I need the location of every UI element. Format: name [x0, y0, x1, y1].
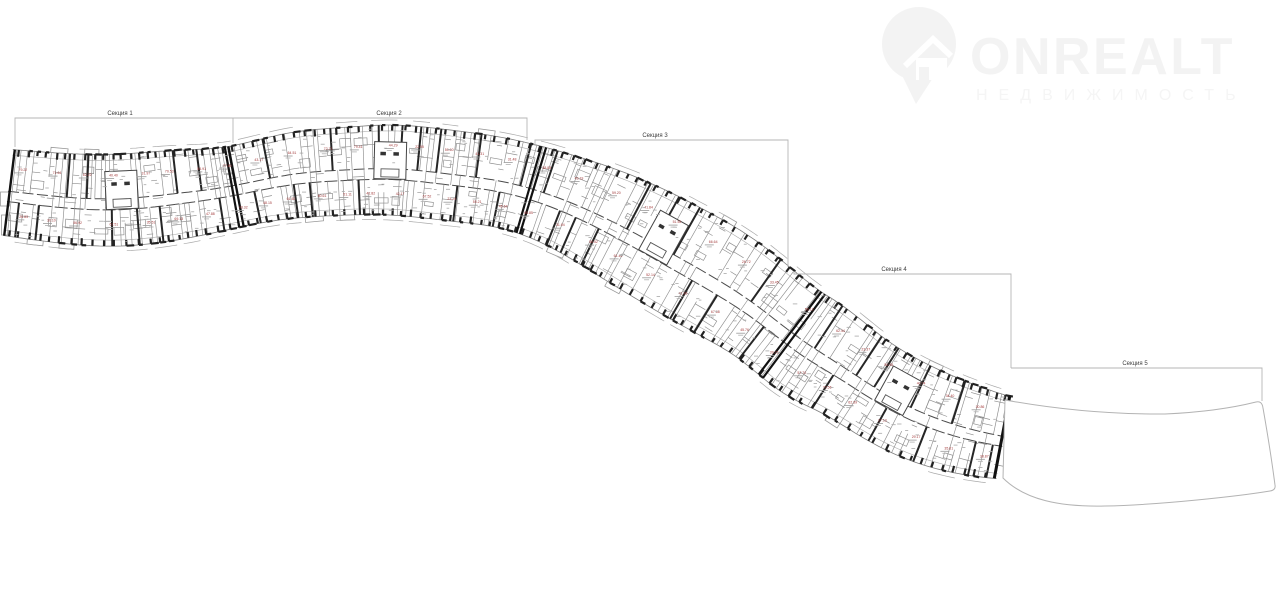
svg-text:44.29: 44.29 [389, 144, 398, 148]
svg-text:56.12: 56.12 [805, 308, 814, 312]
svg-text:38.87: 38.87 [980, 454, 989, 458]
svg-text:62.44: 62.44 [836, 329, 845, 333]
svg-text:23.37: 23.37 [861, 347, 870, 351]
svg-text:Секция 4: Секция 4 [881, 267, 907, 273]
svg-text:43.32: 43.32 [239, 206, 248, 210]
svg-text:27.13: 27.13 [878, 419, 887, 423]
svg-text:52.14: 52.14 [646, 273, 655, 277]
svg-text:43.17: 43.17 [254, 158, 263, 162]
svg-text:41.93: 41.93 [679, 292, 688, 296]
svg-text:31.97: 31.97 [142, 172, 151, 176]
svg-text:45.76: 45.76 [740, 328, 749, 332]
svg-text:57.70: 57.70 [797, 371, 806, 375]
svg-text:33.45: 33.45 [770, 280, 779, 284]
svg-text:26.83: 26.83 [19, 215, 28, 219]
svg-text:65.85: 65.85 [524, 211, 533, 215]
svg-text:67.52: 67.52 [423, 194, 432, 198]
svg-text:72.71: 72.71 [324, 147, 333, 151]
svg-text:77.80: 77.80 [223, 164, 232, 168]
svg-text:35.51: 35.51 [147, 220, 156, 224]
svg-text:70.53: 70.53 [165, 170, 174, 174]
svg-text:64.51: 64.51 [288, 151, 297, 155]
svg-text:41.31: 41.31 [475, 152, 484, 156]
svg-text:Секция 3: Секция 3 [642, 133, 668, 139]
svg-text:31.48: 31.48 [508, 157, 517, 161]
svg-text:62.39: 62.39 [848, 401, 857, 405]
svg-text:50.60: 50.60 [445, 148, 454, 152]
svg-text:62.22: 62.22 [83, 173, 92, 177]
svg-text:71.64: 71.64 [53, 171, 62, 175]
svg-text:НЕДВИЖИМОСТЬ: НЕДВИЖИМОСТЬ [976, 87, 1247, 104]
svg-text:55.21: 55.21 [473, 200, 482, 204]
svg-text:Секция 1: Секция 1 [107, 111, 133, 117]
svg-text:26.72: 26.72 [742, 260, 751, 264]
svg-text:42.17: 42.17 [396, 192, 405, 196]
svg-text:51.55: 51.55 [673, 220, 682, 224]
svg-text:ONREALT: ONREALT [970, 28, 1235, 86]
svg-text:50.35: 50.35 [884, 363, 893, 367]
svg-text:40.40: 40.40 [109, 173, 118, 177]
svg-text:67.68: 67.68 [711, 310, 720, 314]
svg-text:79.22: 79.22 [19, 168, 28, 172]
svg-text:30.10: 30.10 [47, 218, 56, 222]
svg-text:31.94: 31.94 [556, 223, 565, 227]
svg-text:73.56: 73.56 [823, 386, 832, 390]
svg-text:62.51: 62.51 [110, 223, 119, 227]
svg-text:42.82: 42.82 [366, 192, 375, 196]
svg-text:51.11: 51.11 [343, 193, 352, 197]
svg-text:45.64: 45.64 [499, 204, 508, 208]
svg-text:43.19: 43.19 [575, 176, 584, 180]
svg-text:30.86: 30.86 [976, 405, 985, 409]
svg-text:69.13: 69.13 [174, 217, 183, 221]
svg-text:79.41: 79.41 [354, 145, 363, 149]
svg-text:66.64: 66.64 [709, 240, 718, 244]
svg-text:29.17: 29.17 [912, 435, 921, 439]
svg-text:58.52: 58.52 [589, 240, 598, 244]
svg-text:54.91: 54.91 [197, 167, 206, 171]
svg-text:60.61: 60.61 [318, 194, 327, 198]
svg-text:61.52: 61.52 [287, 197, 296, 201]
svg-text:Секция 2: Секция 2 [376, 111, 402, 117]
svg-text:34.40: 34.40 [946, 394, 955, 398]
svg-text:Секция 5: Секция 5 [1122, 361, 1148, 367]
svg-text:40.74: 40.74 [917, 381, 926, 385]
svg-text:22.95: 22.95 [415, 145, 424, 149]
svg-text:48.15: 48.15 [263, 201, 272, 205]
svg-text:56.92: 56.92 [73, 221, 82, 225]
svg-text:38.83: 38.83 [542, 166, 551, 170]
svg-text:59.20: 59.20 [612, 191, 621, 195]
svg-text:35.81: 35.81 [944, 446, 953, 450]
svg-text:47.88: 47.88 [206, 212, 215, 216]
svg-text:41.84: 41.84 [644, 206, 653, 210]
